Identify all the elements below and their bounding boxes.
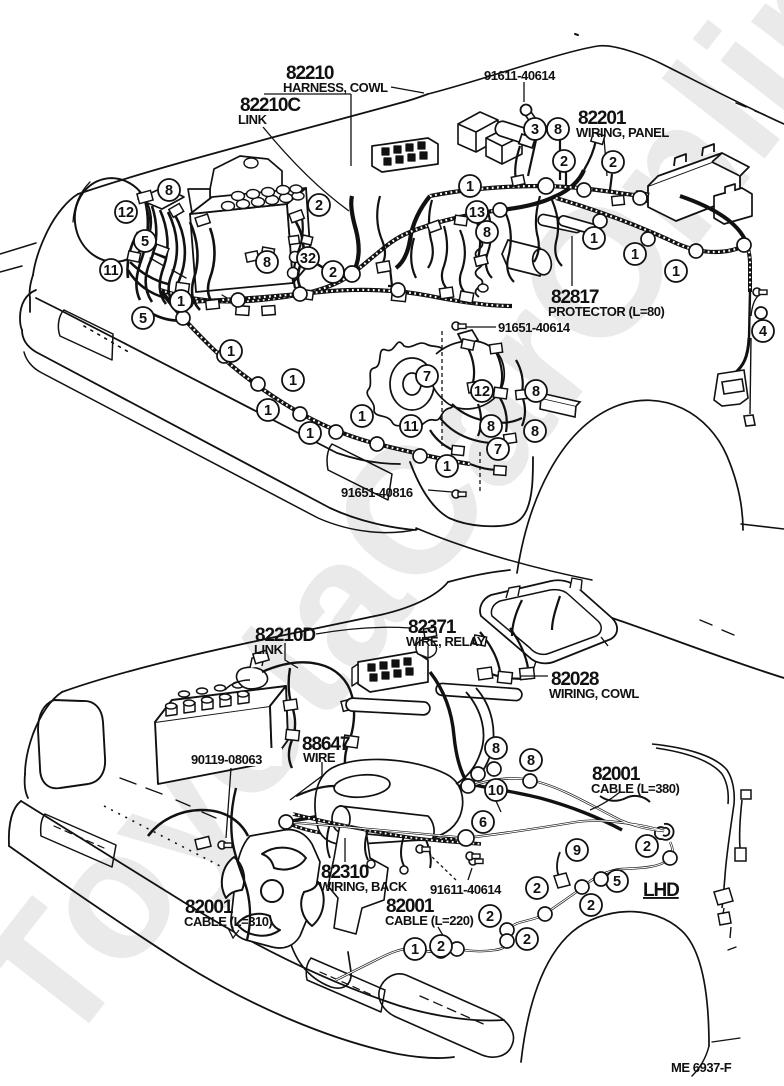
svg-text:5: 5	[139, 311, 147, 327]
svg-text:91651-40816: 91651-40816	[341, 485, 413, 500]
svg-text:90119-08063: 90119-08063	[191, 752, 262, 767]
svg-text:2: 2	[609, 155, 617, 171]
svg-text:2: 2	[643, 839, 651, 855]
svg-text:PROTECTOR (L=80): PROTECTOR (L=80)	[548, 304, 665, 319]
svg-text:1: 1	[443, 459, 451, 475]
svg-text:1: 1	[227, 344, 235, 360]
svg-text:8: 8	[165, 183, 173, 199]
svg-text:8: 8	[483, 225, 491, 241]
svg-text:1: 1	[289, 373, 297, 389]
svg-text:91651-40614: 91651-40614	[498, 320, 571, 335]
svg-text:11: 11	[403, 419, 418, 435]
svg-text:91611-40614: 91611-40614	[484, 68, 556, 83]
svg-text:10: 10	[488, 783, 504, 799]
svg-text:2: 2	[560, 154, 568, 170]
svg-text:7: 7	[423, 369, 431, 385]
svg-text:8: 8	[263, 255, 271, 271]
svg-text:13: 13	[469, 205, 485, 221]
svg-text:7: 7	[494, 442, 502, 458]
svg-text:HARNESS, COWL: HARNESS, COWL	[283, 80, 388, 95]
svg-text:2: 2	[329, 265, 337, 281]
svg-text:LINK: LINK	[238, 112, 268, 127]
svg-text:1: 1	[177, 294, 185, 310]
svg-text:1: 1	[631, 247, 639, 263]
svg-text:2: 2	[437, 939, 445, 955]
svg-text:WIRING, BACK: WIRING, BACK	[319, 879, 408, 894]
svg-text:ME 6937-F: ME 6937-F	[671, 1060, 732, 1075]
svg-text:9: 9	[573, 843, 581, 859]
svg-text:12: 12	[118, 205, 134, 221]
svg-text:8: 8	[554, 122, 562, 138]
svg-text:WIRE: WIRE	[303, 750, 336, 765]
svg-text:2: 2	[315, 198, 323, 214]
svg-text:8: 8	[527, 753, 535, 769]
svg-text:4: 4	[759, 324, 767, 340]
svg-text:WIRING, PANEL: WIRING, PANEL	[576, 125, 669, 140]
svg-text:LINK: LINK	[254, 642, 284, 657]
svg-text:8: 8	[531, 424, 539, 440]
svg-text:6: 6	[479, 815, 487, 831]
svg-text:1: 1	[672, 264, 680, 280]
svg-text:1: 1	[306, 426, 314, 442]
svg-text:1: 1	[264, 403, 272, 419]
svg-text:5: 5	[613, 874, 621, 890]
svg-text:91611-40614: 91611-40614	[430, 882, 502, 897]
svg-text:8: 8	[532, 384, 540, 400]
svg-text:WIRE, RELAY: WIRE, RELAY	[406, 634, 486, 649]
svg-text:2: 2	[587, 898, 595, 914]
svg-text:1: 1	[590, 231, 598, 247]
svg-text:8: 8	[487, 419, 495, 435]
svg-text:LHD: LHD	[643, 880, 679, 901]
svg-text:1: 1	[411, 942, 419, 958]
svg-text:CABLE (L=380): CABLE (L=380)	[591, 781, 680, 796]
svg-text:11: 11	[103, 263, 118, 279]
svg-text:CABLE (L=310): CABLE (L=310)	[184, 914, 273, 929]
svg-text:2: 2	[533, 881, 541, 897]
svg-text:12: 12	[474, 384, 490, 400]
svg-text:1: 1	[358, 409, 366, 425]
svg-text:3: 3	[531, 122, 539, 138]
svg-text:2: 2	[486, 909, 494, 925]
svg-text:WIRING, COWL: WIRING, COWL	[549, 686, 639, 701]
svg-text:8: 8	[492, 741, 500, 757]
svg-text:CABLE (L=220): CABLE (L=220)	[385, 913, 474, 928]
svg-text:5: 5	[141, 234, 149, 250]
svg-text:32: 32	[300, 251, 316, 267]
svg-text:1: 1	[466, 179, 474, 195]
svg-text:2: 2	[523, 932, 531, 948]
